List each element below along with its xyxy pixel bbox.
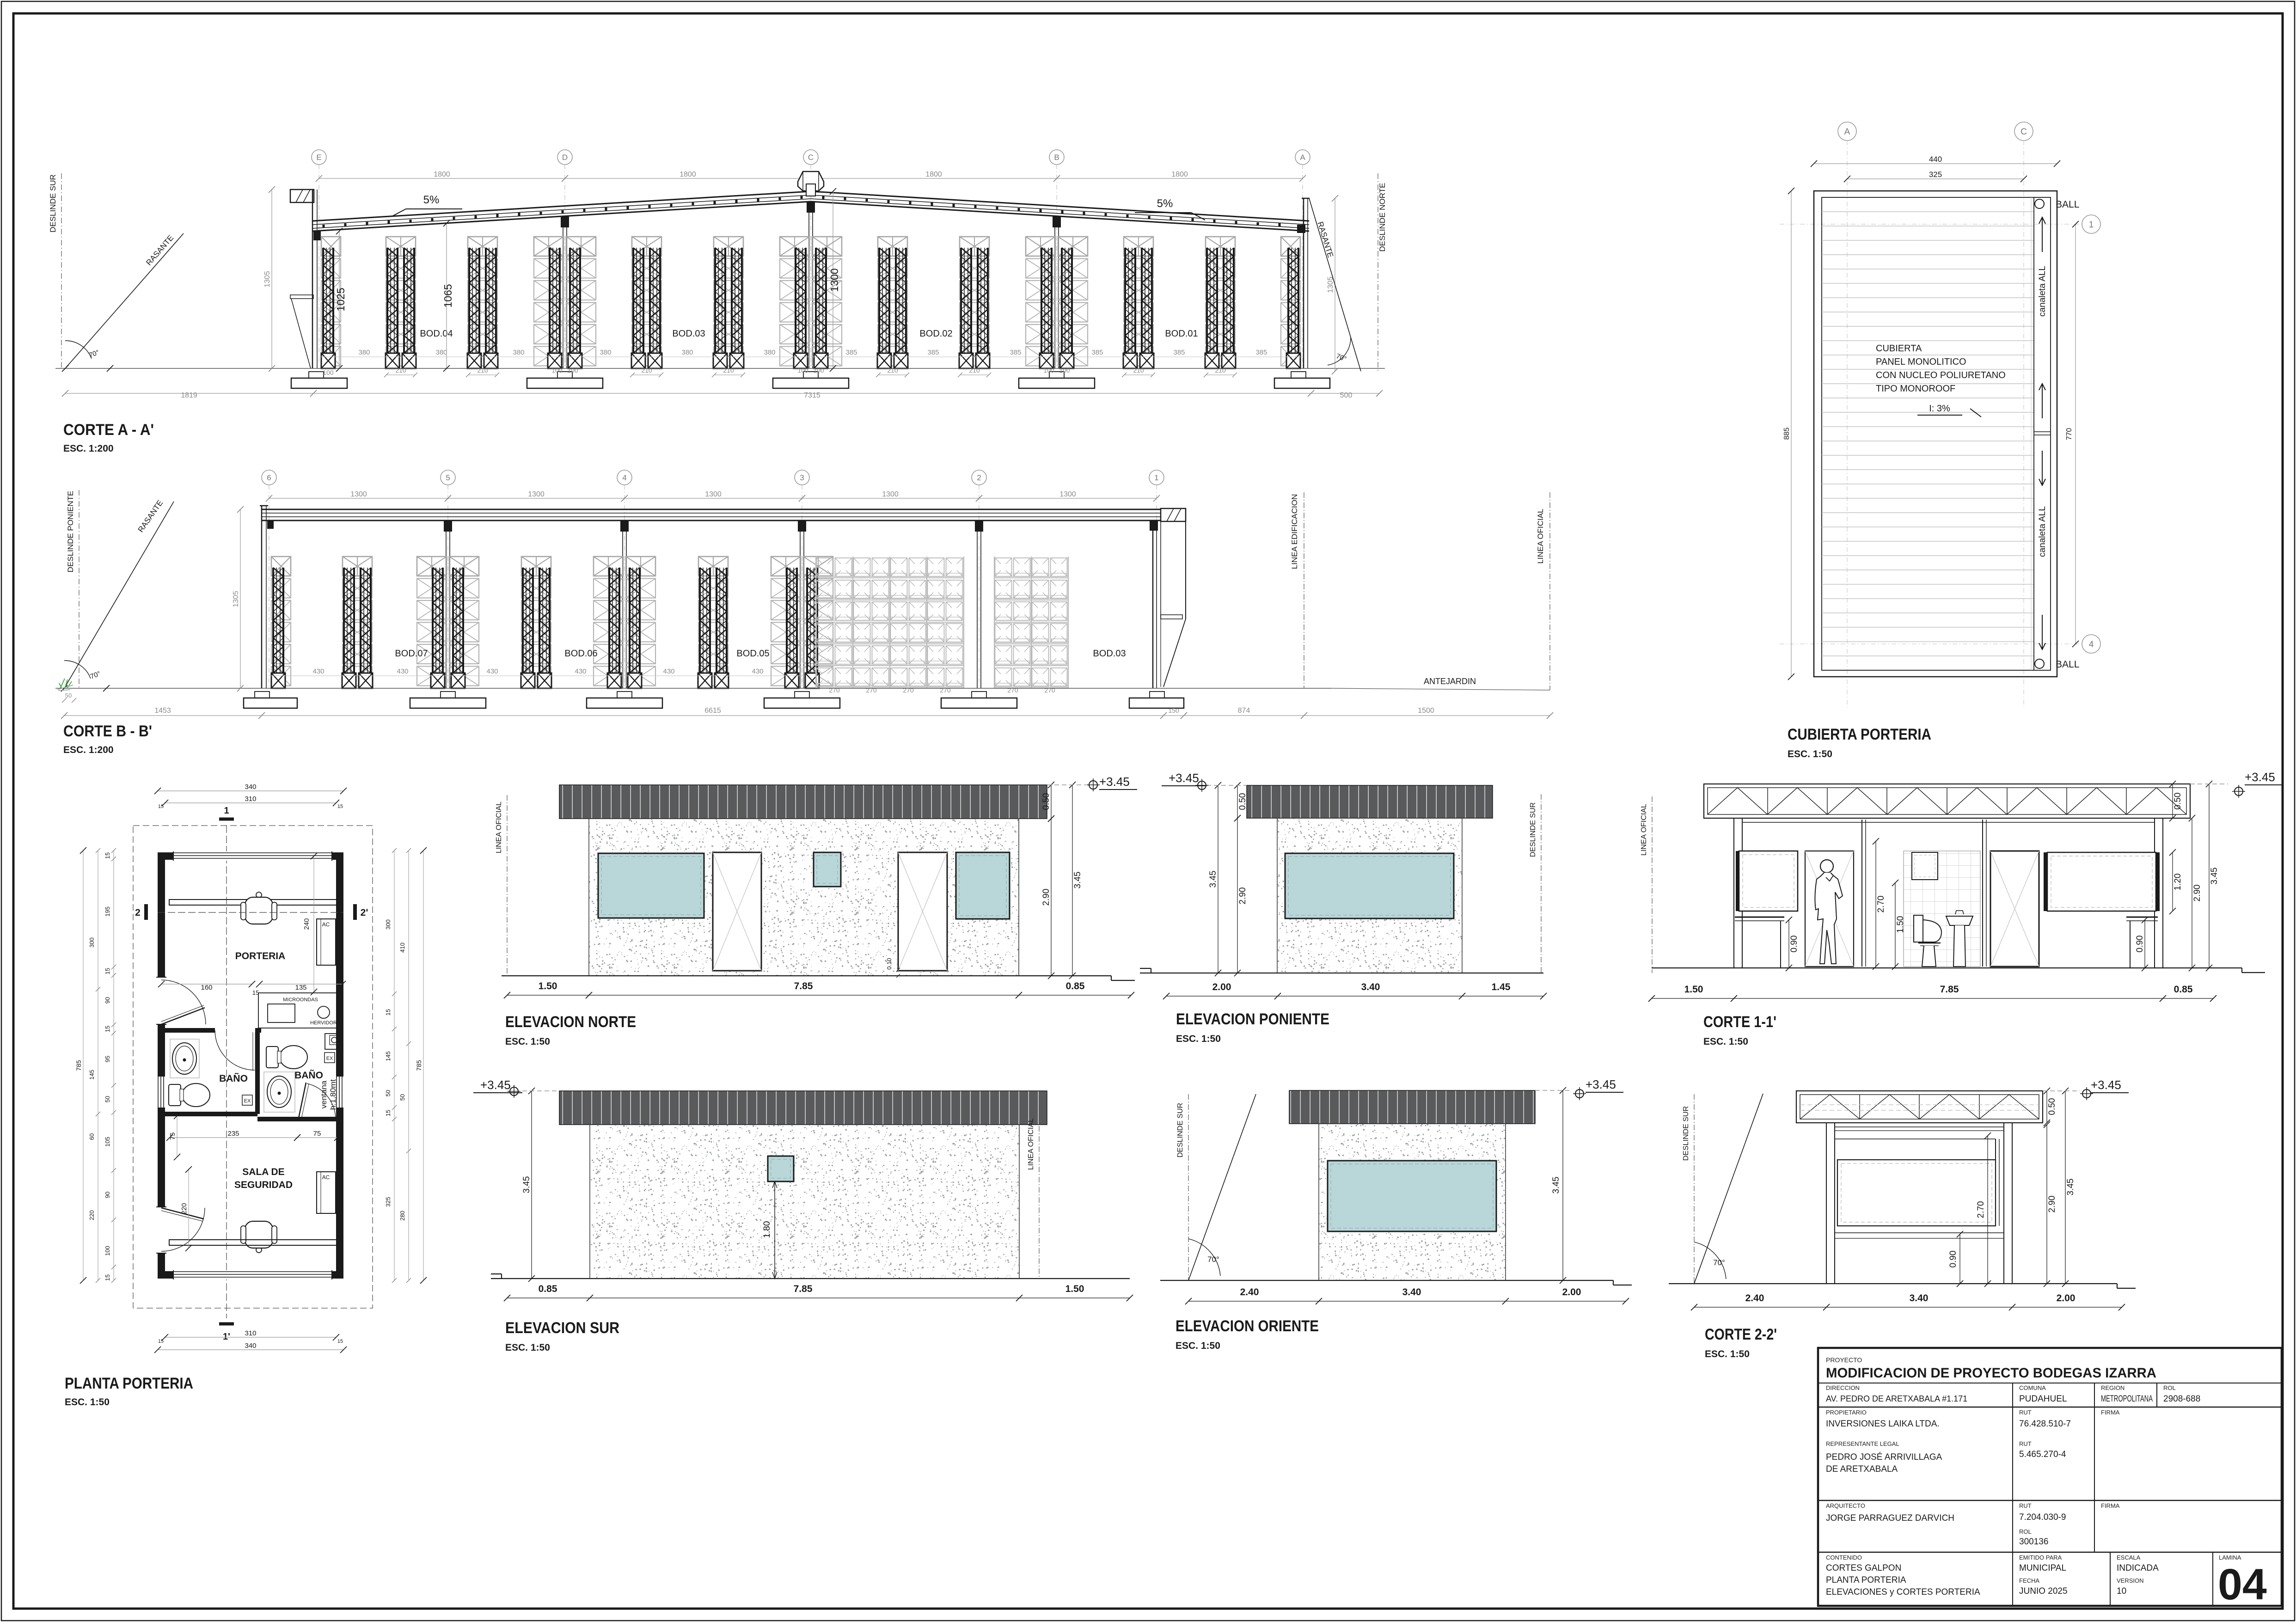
svg-text:2: 2: [135, 907, 141, 918]
svg-text:LINEA OFICIAL: LINEA OFICIAL: [1027, 1118, 1035, 1170]
svg-text:210: 210: [1215, 367, 1226, 374]
svg-text:100: 100: [1059, 367, 1070, 374]
svg-text:0.50: 0.50: [2047, 1098, 2057, 1115]
svg-text:385: 385: [845, 349, 857, 356]
svg-text:2.90: 2.90: [1238, 888, 1248, 905]
svg-text:PUDAHUEL: PUDAHUEL: [2019, 1394, 2067, 1404]
svg-text:ESC. 1:50: ESC. 1:50: [1705, 1349, 1750, 1359]
svg-text:REPRESENTANTE LEGAL: REPRESENTANTE LEGAL: [1826, 1440, 1899, 1447]
svg-text:6615: 6615: [704, 707, 721, 715]
svg-text:15: 15: [337, 1339, 343, 1344]
svg-text:BAÑO: BAÑO: [219, 1073, 248, 1084]
svg-text:10: 10: [2117, 1586, 2126, 1596]
svg-text:50: 50: [385, 1090, 392, 1096]
svg-text:270: 270: [903, 686, 914, 694]
svg-text:ESC. 1:50: ESC. 1:50: [505, 1036, 550, 1047]
svg-text:210: 210: [723, 367, 734, 374]
svg-text:REGION: REGION: [2101, 1384, 2125, 1391]
svg-text:1453: 1453: [154, 707, 171, 715]
svg-text:1305: 1305: [263, 271, 271, 288]
svg-text:2.00: 2.00: [1212, 982, 1231, 992]
svg-text:ventana: ventana: [319, 1080, 328, 1108]
svg-text:4: 4: [622, 473, 626, 482]
svg-text:METROPOLITANA: METROPOLITANA: [2101, 1394, 2153, 1404]
svg-text:PORTERIA: PORTERIA: [235, 951, 286, 961]
svg-text:2.90: 2.90: [1041, 889, 1051, 906]
svg-text:ELEVACIONES y CORTES PORTERIA: ELEVACIONES y CORTES PORTERIA: [1826, 1587, 1980, 1597]
svg-text:CORTE A - A': CORTE A - A': [63, 421, 154, 439]
svg-text:15: 15: [158, 1339, 164, 1344]
svg-text:270: 270: [1044, 686, 1055, 694]
svg-text:380: 380: [513, 349, 524, 356]
svg-text:1500: 1500: [1418, 707, 1434, 715]
svg-text:ELEVACION PONIENTE: ELEVACION PONIENTE: [1176, 1010, 1329, 1028]
svg-text:15: 15: [104, 1274, 111, 1281]
svg-text:+3.45: +3.45: [1169, 771, 1199, 785]
svg-text:ROL: ROL: [2019, 1528, 2032, 1535]
svg-text:3.45: 3.45: [1208, 871, 1218, 888]
svg-text:1300: 1300: [528, 490, 545, 498]
svg-text:1.20: 1.20: [2173, 874, 2183, 891]
svg-text:0.50: 0.50: [2173, 793, 2183, 810]
svg-text:210: 210: [887, 367, 898, 374]
svg-text:CORTE 1-1': CORTE 1-1': [1703, 1013, 1776, 1031]
svg-text:340: 340: [245, 1342, 256, 1350]
svg-text:280: 280: [399, 1211, 406, 1221]
svg-text:AC: AC: [322, 1174, 330, 1181]
svg-text:1300: 1300: [350, 490, 367, 498]
svg-text:MODIFICACION DE PROYECTO BODEG: MODIFICACION DE PROYECTO BODEGAS IZARRA: [1826, 1365, 2156, 1381]
svg-text:JORGE PARRAGUEZ DARVICH: JORGE PARRAGUEZ DARVICH: [1826, 1513, 1954, 1523]
svg-text:100: 100: [567, 367, 578, 374]
svg-text:430: 430: [397, 667, 408, 675]
svg-text:ESC. 1:200: ESC. 1:200: [63, 443, 114, 454]
svg-text:3.40: 3.40: [1402, 1287, 1421, 1298]
svg-text:TIPO MONOROOF: TIPO MONOROOF: [1876, 384, 1955, 394]
svg-text:1.50: 1.50: [1896, 916, 1905, 933]
svg-text:2.00: 2.00: [2057, 1293, 2076, 1304]
svg-text:PANEL MONOLITICO: PANEL MONOLITICO: [1876, 357, 1966, 367]
svg-text:ELEVACION SUR: ELEVACION SUR: [505, 1319, 619, 1337]
svg-text:AV. PEDRO DE ARETXABALA #1.171: AV. PEDRO DE ARETXABALA #1.171: [1826, 1394, 1967, 1403]
svg-text:75: 75: [313, 1130, 321, 1138]
svg-text:BALL: BALL: [2056, 199, 2079, 210]
svg-text:874: 874: [1238, 707, 1250, 715]
svg-text:430: 430: [312, 667, 324, 675]
svg-text:BOD.05: BOD.05: [736, 649, 769, 659]
svg-text:1.50: 1.50: [1065, 1284, 1084, 1294]
svg-text:325: 325: [1929, 170, 1942, 179]
svg-text:EMITIDO PARA: EMITIDO PARA: [2019, 1554, 2062, 1561]
svg-text:2.90: 2.90: [2192, 885, 2202, 902]
svg-text:150: 150: [1168, 707, 1179, 714]
svg-text:160: 160: [201, 984, 212, 992]
svg-text:DESLINDE SUR: DESLINDE SUR: [1176, 1103, 1184, 1157]
svg-text:300136: 300136: [2019, 1537, 2048, 1547]
svg-text:DIRECCION: DIRECCION: [1826, 1384, 1860, 1391]
svg-text:3.45: 3.45: [1073, 872, 1083, 889]
svg-text:ARQUITECTO: ARQUITECTO: [1826, 1502, 1865, 1509]
svg-text:ESC. 1:50: ESC. 1:50: [1788, 749, 1832, 759]
svg-text:0.90: 0.90: [1789, 936, 1799, 953]
svg-text:BOD.07: BOD.07: [395, 649, 428, 659]
svg-text:15: 15: [385, 1110, 392, 1116]
svg-text:430: 430: [575, 667, 586, 675]
svg-text:3.45: 3.45: [2066, 1179, 2076, 1196]
svg-text:FIRMA: FIRMA: [2101, 1502, 2120, 1509]
svg-text:ESCALA: ESCALA: [2117, 1554, 2141, 1561]
svg-text:235: 235: [227, 1130, 239, 1138]
svg-text:100: 100: [551, 367, 563, 374]
svg-text:PROYECTO: PROYECTO: [1826, 1356, 1862, 1364]
svg-text:300: 300: [385, 919, 392, 930]
svg-text:PEDRO JOSÉ ARRIVILLAGA: PEDRO JOSÉ ARRIVILLAGA: [1826, 1452, 1942, 1462]
svg-text:BOD.02: BOD.02: [919, 329, 952, 339]
svg-text:CORTE 2-2': CORTE 2-2': [1705, 1326, 1777, 1343]
svg-text:2.00: 2.00: [1562, 1287, 1581, 1298]
svg-text:BOD.06: BOD.06: [564, 649, 597, 659]
svg-text:135: 135: [295, 984, 306, 992]
svg-text:3.45: 3.45: [1551, 1177, 1561, 1194]
svg-text:385: 385: [1010, 349, 1021, 356]
svg-text:SALA DE: SALA DE: [242, 1167, 284, 1177]
svg-text:76.428.510-7: 76.428.510-7: [2019, 1419, 2071, 1429]
svg-text:310: 310: [245, 795, 256, 803]
svg-text:210: 210: [641, 367, 652, 374]
svg-text:ROL: ROL: [2163, 1384, 2176, 1391]
svg-text:100: 100: [813, 367, 824, 374]
svg-text:1: 1: [1154, 473, 1158, 482]
svg-text:ESC. 1:50: ESC. 1:50: [1703, 1036, 1748, 1047]
svg-text:3.45: 3.45: [522, 1176, 532, 1194]
svg-text:1025: 1025: [335, 288, 347, 311]
svg-text:MUNICIPAL: MUNICIPAL: [2019, 1563, 2066, 1573]
svg-text:210: 210: [969, 367, 980, 374]
svg-text:270: 270: [829, 686, 840, 694]
svg-text:100: 100: [797, 367, 808, 374]
svg-text:100: 100: [323, 369, 334, 376]
svg-text:90: 90: [104, 1192, 111, 1198]
svg-text:+3.45: +3.45: [2091, 1078, 2121, 1092]
svg-text:15: 15: [104, 852, 111, 859]
svg-text:2.70: 2.70: [1876, 896, 1886, 913]
svg-text:380: 380: [600, 349, 611, 356]
svg-text:15: 15: [158, 804, 164, 809]
svg-text:430: 430: [486, 667, 498, 675]
svg-text:15: 15: [385, 1009, 392, 1016]
svg-text:1: 1: [224, 806, 229, 816]
svg-text:300: 300: [88, 937, 95, 948]
svg-text:FECHA: FECHA: [2019, 1577, 2039, 1584]
svg-text:380: 380: [358, 349, 370, 356]
svg-text:VERSION: VERSION: [2117, 1577, 2144, 1584]
svg-text:50: 50: [65, 692, 72, 699]
svg-text:I: 3%: I: 3%: [1929, 404, 1950, 414]
svg-text:3: 3: [800, 473, 804, 482]
svg-text:145: 145: [385, 1051, 392, 1061]
svg-text:INVERSIONES LAIKA LTDA.: INVERSIONES LAIKA LTDA.: [1826, 1419, 1940, 1429]
svg-text:70°: 70°: [1713, 1258, 1725, 1267]
svg-text:BOD.03: BOD.03: [672, 329, 705, 339]
svg-text:3.40: 3.40: [1361, 982, 1380, 992]
svg-text:ANTEJARDIN: ANTEJARDIN: [1424, 677, 1476, 686]
svg-text:95: 95: [104, 1056, 111, 1062]
svg-text:220: 220: [88, 1210, 95, 1220]
svg-text:C: C: [2020, 127, 2027, 137]
svg-text:1.45: 1.45: [1492, 982, 1511, 992]
svg-text:380: 380: [681, 349, 693, 356]
svg-text:1: 1: [2089, 220, 2094, 230]
svg-text:15: 15: [252, 989, 259, 996]
svg-text:04: 04: [2218, 1560, 2267, 1609]
svg-text:E: E: [316, 153, 321, 162]
svg-text:195: 195: [104, 906, 111, 917]
svg-text:785: 785: [75, 1060, 82, 1071]
svg-text:0.50: 0.50: [1238, 793, 1248, 810]
svg-text:385: 385: [1173, 349, 1185, 356]
svg-text:15: 15: [104, 1026, 111, 1032]
svg-text:BOD.01: BOD.01: [1165, 329, 1198, 339]
svg-text:BAÑO: BAÑO: [294, 1070, 323, 1081]
svg-text:785: 785: [415, 1060, 422, 1071]
svg-text:PROPIETARIO: PROPIETARIO: [1826, 1409, 1867, 1416]
svg-text:ESC. 1:50: ESC. 1:50: [1176, 1340, 1220, 1351]
svg-text:15: 15: [337, 804, 343, 809]
svg-text:100: 100: [1043, 367, 1054, 374]
svg-text:RUT: RUT: [2019, 1440, 2032, 1447]
svg-text:385: 385: [927, 349, 939, 356]
svg-text:LINEA OFICIAL: LINEA OFICIAL: [1536, 508, 1545, 563]
svg-text:1300: 1300: [705, 490, 722, 498]
svg-text:PLANTA PORTERIA: PLANTA PORTERIA: [1826, 1575, 1906, 1585]
svg-text:385: 385: [1255, 349, 1267, 356]
svg-text:7.85: 7.85: [794, 1284, 813, 1294]
svg-text:90: 90: [104, 997, 111, 1004]
svg-text:2.90: 2.90: [2047, 1196, 2057, 1213]
svg-text:0.50: 0.50: [1041, 793, 1051, 810]
svg-text:canaleta ALL: canaleta ALL: [2038, 506, 2047, 557]
svg-text:RUT: RUT: [2019, 1502, 2032, 1509]
svg-text:A: A: [1300, 153, 1305, 162]
svg-text:5%: 5%: [423, 194, 440, 206]
svg-text:145: 145: [88, 1070, 95, 1080]
svg-text:AC: AC: [322, 921, 330, 928]
svg-text:ESC. 1:50: ESC. 1:50: [65, 1397, 110, 1408]
svg-text:HERVIDOR: HERVIDOR: [310, 1020, 337, 1026]
svg-text:BOD.04: BOD.04: [420, 329, 453, 339]
svg-text:430: 430: [752, 667, 763, 675]
svg-text:3.45: 3.45: [2210, 868, 2219, 885]
svg-text:LINEA OFICIAL: LINEA OFICIAL: [1640, 804, 1648, 856]
svg-text:885: 885: [1783, 428, 1791, 440]
svg-text:270: 270: [866, 686, 877, 694]
svg-text:A: A: [1844, 127, 1850, 137]
svg-text:CORTE B - B': CORTE B - B': [63, 722, 152, 740]
svg-text:ELEVACION ORIENTE: ELEVACION ORIENTE: [1176, 1317, 1319, 1335]
svg-text:310: 310: [245, 1329, 256, 1337]
svg-text:210: 210: [477, 367, 488, 374]
svg-text:50: 50: [104, 1096, 111, 1102]
svg-text:INDICADA: INDICADA: [2117, 1563, 2159, 1573]
svg-text:h:1,80mt: h:1,80mt: [329, 1079, 337, 1110]
svg-text:1065: 1065: [442, 284, 454, 307]
svg-text:ELEVACION NORTE: ELEVACION NORTE: [505, 1013, 636, 1031]
svg-text:75: 75: [169, 1132, 177, 1140]
svg-text:1.50: 1.50: [539, 981, 557, 992]
svg-text:1800: 1800: [434, 171, 450, 178]
svg-text:JUNIO 2025: JUNIO 2025: [2019, 1586, 2068, 1596]
svg-text:D: D: [562, 153, 568, 162]
svg-text:1800: 1800: [1171, 171, 1188, 178]
svg-text:770: 770: [2065, 428, 2073, 441]
svg-text:60: 60: [88, 1133, 95, 1140]
svg-text:LINEA OFICIAL: LINEA OFICIAL: [495, 802, 503, 853]
svg-text:COMUNA: COMUNA: [2019, 1384, 2046, 1391]
svg-text:DESLINDE SUR: DESLINDE SUR: [1682, 1106, 1690, 1161]
svg-text:0.85: 0.85: [2174, 984, 2193, 995]
svg-text:1305: 1305: [232, 591, 240, 607]
svg-text:70°: 70°: [1207, 1255, 1219, 1264]
svg-text:C: C: [808, 153, 814, 162]
svg-text:3.40: 3.40: [1910, 1293, 1929, 1304]
svg-text:2908-688: 2908-688: [2163, 1394, 2200, 1404]
svg-text:210: 210: [1133, 367, 1144, 374]
svg-text:EX: EX: [244, 1098, 251, 1104]
svg-text:CORTES GALPON: CORTES GALPON: [1826, 1563, 1901, 1573]
svg-text:7.85: 7.85: [1940, 984, 1959, 995]
svg-text:270: 270: [940, 686, 951, 694]
svg-text:ESC. 1:50: ESC. 1:50: [505, 1342, 550, 1353]
svg-text:1300: 1300: [828, 268, 840, 292]
svg-text:canaleta ALL: canaleta ALL: [2038, 266, 2047, 317]
svg-text:340: 340: [245, 783, 256, 791]
svg-text:DE ARETXABALA: DE ARETXABALA: [1826, 1464, 1898, 1474]
svg-text:BALL: BALL: [2056, 659, 2079, 670]
svg-text:+3.45: +3.45: [480, 1078, 511, 1092]
svg-text:5%: 5%: [1157, 197, 1173, 210]
svg-text:5: 5: [446, 473, 450, 482]
svg-text:CUBIERTA PORTERIA: CUBIERTA PORTERIA: [1788, 726, 1931, 743]
svg-text:2': 2': [361, 907, 368, 918]
svg-text:+3.45: +3.45: [1099, 775, 1130, 789]
svg-text:ESC. 1:50: ESC. 1:50: [1176, 1034, 1221, 1044]
svg-text:DESLINDE SUR: DESLINDE SUR: [49, 174, 57, 233]
svg-text:0.90: 0.90: [2135, 936, 2145, 953]
svg-text:LINEA EDIFICACION: LINEA EDIFICACION: [1290, 494, 1299, 569]
svg-text:B: B: [1054, 153, 1059, 162]
svg-text:CUBIERTA: CUBIERTA: [1876, 343, 1922, 354]
svg-text:380: 380: [435, 349, 447, 356]
svg-text:410: 410: [399, 943, 406, 953]
svg-text:7.204.030-9: 7.204.030-9: [2019, 1512, 2066, 1522]
svg-text:4: 4: [2089, 640, 2094, 649]
svg-text:DESLINDE NORTE: DESLINDE NORTE: [1378, 183, 1387, 252]
svg-text:1': 1': [223, 1332, 230, 1342]
svg-text:1800: 1800: [680, 171, 696, 178]
svg-text:100: 100: [104, 1246, 111, 1256]
svg-text:440: 440: [1929, 155, 1942, 164]
svg-text:CONTENIDO: CONTENIDO: [1826, 1554, 1862, 1561]
svg-text:DESLINDE SUR: DESLINDE SUR: [1529, 802, 1537, 857]
svg-text:240: 240: [303, 918, 311, 930]
svg-text:1300: 1300: [1059, 490, 1076, 498]
svg-text:1.50: 1.50: [1684, 984, 1703, 995]
svg-text:325: 325: [385, 1197, 392, 1207]
svg-text:1300: 1300: [882, 490, 899, 498]
svg-text:BOD.03: BOD.03: [1093, 649, 1126, 659]
svg-text:2: 2: [977, 473, 981, 482]
svg-text:5.465.270-4: 5.465.270-4: [2019, 1450, 2066, 1459]
svg-text:1819: 1819: [181, 392, 197, 399]
svg-text:2.70: 2.70: [1976, 1201, 1986, 1218]
svg-text:270: 270: [1007, 686, 1018, 694]
svg-text:0.10: 0.10: [886, 958, 893, 969]
svg-text:50: 50: [399, 1094, 406, 1101]
svg-text:CON NUCLEO POLIURETANO: CON NUCLEO POLIURETANO: [1876, 370, 2006, 380]
svg-text:2.40: 2.40: [1745, 1293, 1764, 1304]
svg-text:FIRMA: FIRMA: [2101, 1409, 2120, 1416]
svg-text:15: 15: [104, 968, 111, 974]
svg-text:7315: 7315: [804, 392, 820, 399]
svg-text:1800: 1800: [925, 171, 942, 178]
svg-text:0.85: 0.85: [1066, 981, 1085, 992]
svg-text:PLANTA PORTERIA: PLANTA PORTERIA: [65, 1375, 193, 1392]
svg-text:380: 380: [764, 349, 775, 356]
svg-text:430: 430: [663, 667, 674, 675]
svg-text:RUT: RUT: [2019, 1409, 2032, 1416]
svg-text:+3.45: +3.45: [2245, 770, 2275, 784]
svg-text:385: 385: [1091, 349, 1103, 356]
svg-text:MICROONDAS: MICROONDAS: [283, 997, 318, 1003]
svg-text:0.85: 0.85: [539, 1284, 557, 1294]
svg-text:500: 500: [1340, 392, 1353, 399]
svg-text:6: 6: [267, 473, 271, 482]
svg-text:220: 220: [180, 1203, 188, 1214]
svg-text:210: 210: [395, 367, 406, 374]
svg-text:EX: EX: [326, 1056, 333, 1061]
svg-text:ESC. 1:200: ESC. 1:200: [63, 745, 114, 755]
svg-text:0.90: 0.90: [1948, 1251, 1958, 1268]
svg-text:DESLINDE PONIENTE: DESLINDE PONIENTE: [66, 491, 75, 573]
svg-text:+3.45: +3.45: [1586, 1077, 1616, 1091]
svg-text:SEGURIDAD: SEGURIDAD: [234, 1180, 293, 1190]
svg-text:7.85: 7.85: [794, 981, 813, 992]
svg-text:105: 105: [104, 1137, 111, 1147]
svg-text:1.80: 1.80: [762, 1221, 772, 1238]
svg-text:2.40: 2.40: [1240, 1287, 1259, 1298]
